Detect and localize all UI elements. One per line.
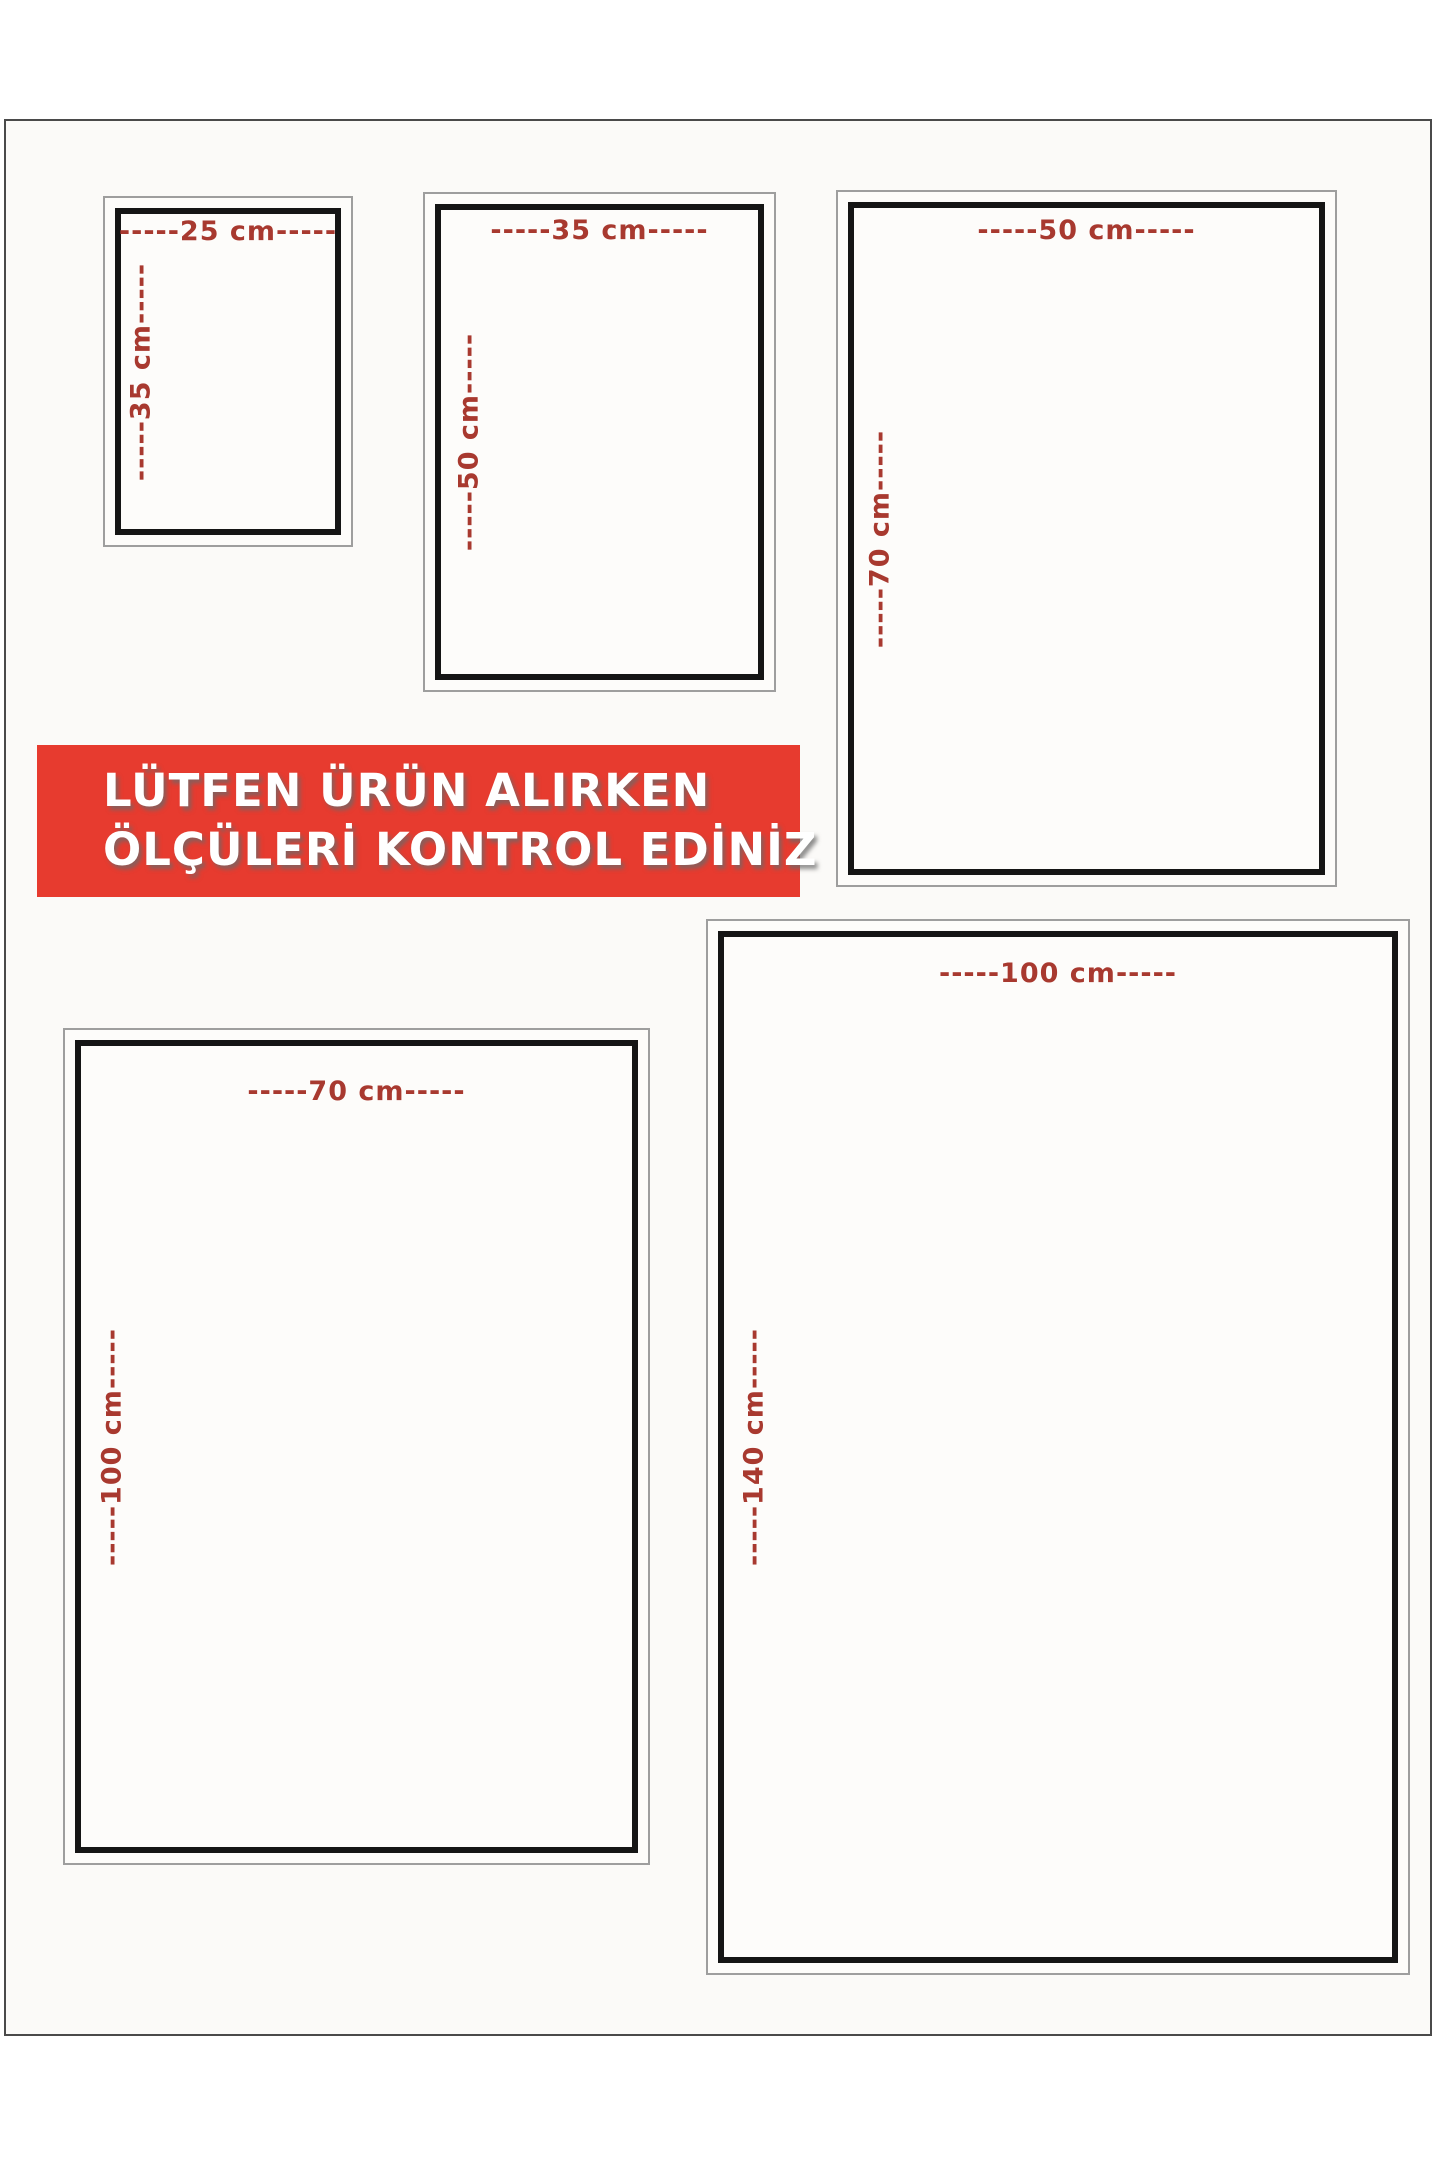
size-box-100x140-inner-border (718, 931, 1398, 1963)
notice-line-2: ÖLÇÜLERİ KONTROL EDİNİZ (103, 823, 800, 878)
size-chart: -----25 cm----- -----35 cm----- -----35 … (0, 0, 1440, 2160)
notice-line-1: LÜTFEN ÜRÜN ALIRKEN (103, 764, 800, 819)
size-box-50x70: -----50 cm----- -----70 cm----- (836, 190, 1337, 887)
height-dimension-label: -----50 cm----- (454, 333, 485, 551)
size-box-35x50: -----35 cm----- -----50 cm----- (423, 192, 776, 692)
size-box-100x140: -----100 cm----- -----140 cm----- (706, 919, 1410, 1975)
size-box-25x35: -----25 cm----- -----35 cm----- (103, 196, 353, 547)
width-dimension-label: -----100 cm----- (708, 958, 1408, 989)
height-dimension-label: -----70 cm----- (865, 429, 896, 647)
width-dimension-label: -----50 cm----- (838, 215, 1335, 246)
size-box-50x70-inner-border (848, 202, 1325, 875)
width-dimension-label: -----35 cm----- (425, 215, 774, 246)
height-dimension-label: -----100 cm----- (97, 1328, 128, 1566)
width-dimension-label: -----25 cm----- (105, 216, 351, 247)
size-box-70x100-inner-border (75, 1040, 638, 1853)
height-dimension-label: -----35 cm----- (126, 262, 157, 480)
height-dimension-label: -----140 cm----- (739, 1328, 770, 1566)
size-box-70x100: -----70 cm----- -----100 cm----- (63, 1028, 650, 1865)
width-dimension-label: -----70 cm----- (65, 1076, 648, 1107)
notice-banner: LÜTFEN ÜRÜN ALIRKEN ÖLÇÜLERİ KONTROL EDİ… (37, 745, 800, 897)
